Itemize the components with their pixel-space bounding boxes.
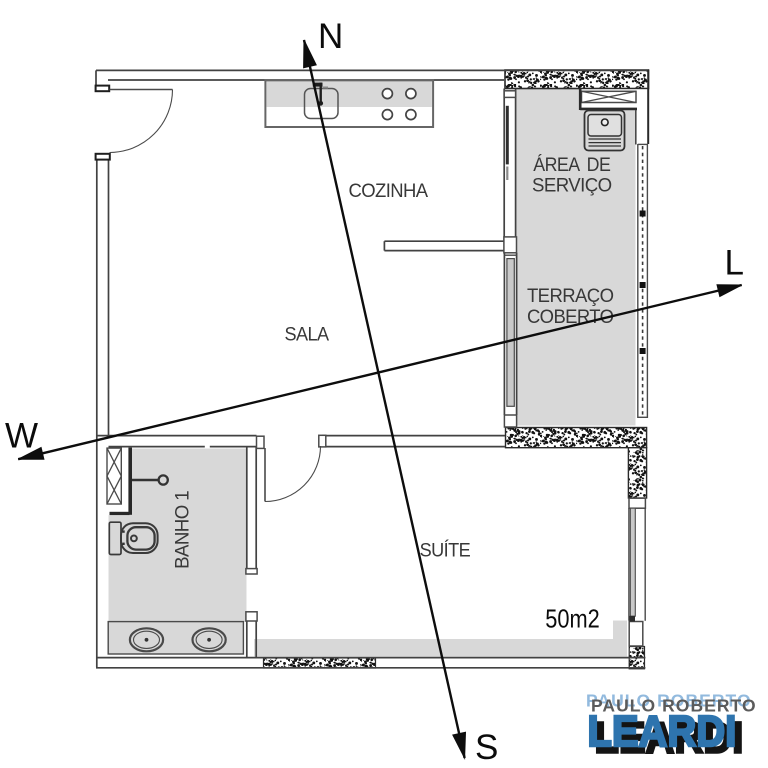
svg-text:50m2: 50m2 (545, 604, 600, 634)
svg-text:S: S (475, 728, 498, 767)
svg-text:L: L (725, 244, 744, 283)
svg-text:COBERTO: COBERTO (527, 307, 614, 328)
svg-text:ÁREA DE: ÁREA DE (533, 155, 610, 176)
svg-text:N: N (318, 17, 343, 56)
svg-text:W: W (5, 417, 38, 456)
svg-text:LEARDI: LEARDI (588, 708, 737, 756)
svg-text:SERVIÇO: SERVIÇO (532, 176, 612, 197)
svg-text:TERRAÇO: TERRAÇO (527, 286, 614, 307)
svg-text:COZINHA: COZINHA (349, 181, 429, 202)
svg-text:SUÍTE: SUÍTE (420, 541, 471, 562)
svg-text:BANHO 1: BANHO 1 (173, 491, 194, 569)
svg-text:SALA: SALA (285, 324, 330, 345)
